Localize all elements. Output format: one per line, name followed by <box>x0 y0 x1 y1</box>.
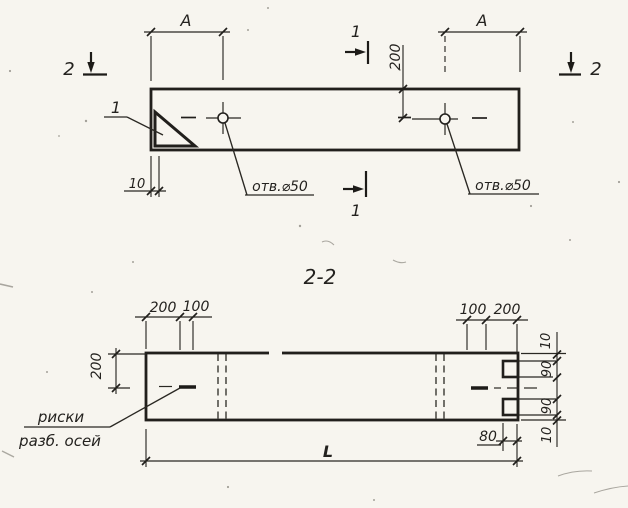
arrowhead-right <box>353 185 364 193</box>
technical-drawing: A A 200 1 <box>0 0 628 508</box>
arrowhead-right <box>355 48 366 56</box>
arrowhead-down <box>567 62 574 73</box>
centerline <box>159 387 537 389</box>
section-view: 2-2 200 <box>18 265 566 467</box>
dim-200-vertical: 200 <box>388 44 411 122</box>
speck <box>530 205 532 207</box>
edge-mark <box>2 451 14 457</box>
dim-top-right: 100 200 <box>456 302 528 352</box>
pencil-mark <box>393 260 406 263</box>
dim-text-200: 200 <box>494 302 521 318</box>
speck <box>399 69 401 71</box>
leader-line <box>447 124 470 194</box>
drawing-sheet: A A 200 1 <box>0 0 628 508</box>
dim-200-left: 200 <box>89 348 146 394</box>
dim-right-chain: 10 90 90 10 <box>519 332 566 447</box>
dim-text-100: 100 <box>183 299 210 315</box>
speck <box>299 225 301 227</box>
hidden-hole-left <box>218 354 226 419</box>
plan-view: A A 200 1 <box>63 11 601 220</box>
marker-text: 2 <box>590 59 601 80</box>
dim-80: 80 <box>477 423 522 451</box>
speck <box>373 499 375 501</box>
dim-top-left: 200 100 <box>135 299 212 350</box>
speck <box>572 121 574 123</box>
arrowhead-down <box>87 62 94 73</box>
dim-text-90: 90 <box>540 361 555 378</box>
hidden-hole-right <box>436 354 444 419</box>
dim-text-a: A <box>180 11 192 30</box>
leader-line <box>225 123 247 195</box>
hole-label-right: отв.⌀50 <box>447 124 539 194</box>
leader-line <box>127 117 163 135</box>
dim-text-200: 200 <box>150 300 177 316</box>
speck <box>9 70 11 72</box>
hole-label-text: отв.⌀50 <box>475 178 531 194</box>
edge-mark <box>0 284 13 287</box>
speck <box>569 239 571 241</box>
notch-bottom <box>503 399 518 415</box>
dim-length-l: L <box>140 424 523 467</box>
section-title: 2-2 <box>304 265 337 289</box>
marker-text: 1 <box>351 22 361 41</box>
callout-text: 1 <box>111 98 121 117</box>
section-marker-1-bottom: 1 <box>343 171 366 220</box>
dim-text-200: 200 <box>89 353 105 380</box>
section-marker-1-top: 1 <box>345 22 368 64</box>
dim-text-10: 10 <box>540 427 555 444</box>
dim-text-80: 80 <box>479 429 497 445</box>
marker-text: 1 <box>351 201 361 220</box>
speck <box>132 261 134 263</box>
marker-text: 2 <box>63 59 74 80</box>
speck <box>267 7 269 9</box>
speck <box>227 486 229 488</box>
notch-top <box>503 361 518 377</box>
dim-text-100: 100 <box>460 302 487 318</box>
hole-left <box>181 102 241 134</box>
dim-a-left: A <box>144 11 230 81</box>
hole-label-left: отв.⌀50 <box>225 123 314 195</box>
speck <box>91 291 93 293</box>
dim-text-10: 10 <box>129 177 146 192</box>
speck <box>85 120 87 122</box>
dim-a-right: A <box>438 11 527 76</box>
beam-outline <box>146 353 518 420</box>
dim-text-200: 200 <box>388 44 404 71</box>
dim-text-90: 90 <box>540 398 555 415</box>
dim-text-a: A <box>476 11 488 30</box>
speck <box>58 135 60 137</box>
speck <box>46 371 48 373</box>
section-marker-2-left: 2 <box>63 52 107 80</box>
label-line-1: риски <box>37 408 85 426</box>
speck <box>247 29 249 31</box>
beam-outline <box>151 89 519 150</box>
speck <box>618 181 620 183</box>
pencil-mark <box>322 241 334 245</box>
label-line-2: разб. осей <box>18 432 101 450</box>
section-marker-2-right: 2 <box>559 52 602 80</box>
pencil-mark <box>594 486 628 493</box>
dim-10-chamfer: 10 <box>124 156 166 197</box>
dim-text-l: L <box>323 442 333 461</box>
hole-label-text: отв.⌀50 <box>252 179 308 195</box>
scan-gap <box>269 349 282 356</box>
hole-circle <box>218 113 228 123</box>
hole-circle <box>440 114 450 124</box>
dim-text-10: 10 <box>539 333 554 350</box>
pencil-mark <box>558 471 592 476</box>
